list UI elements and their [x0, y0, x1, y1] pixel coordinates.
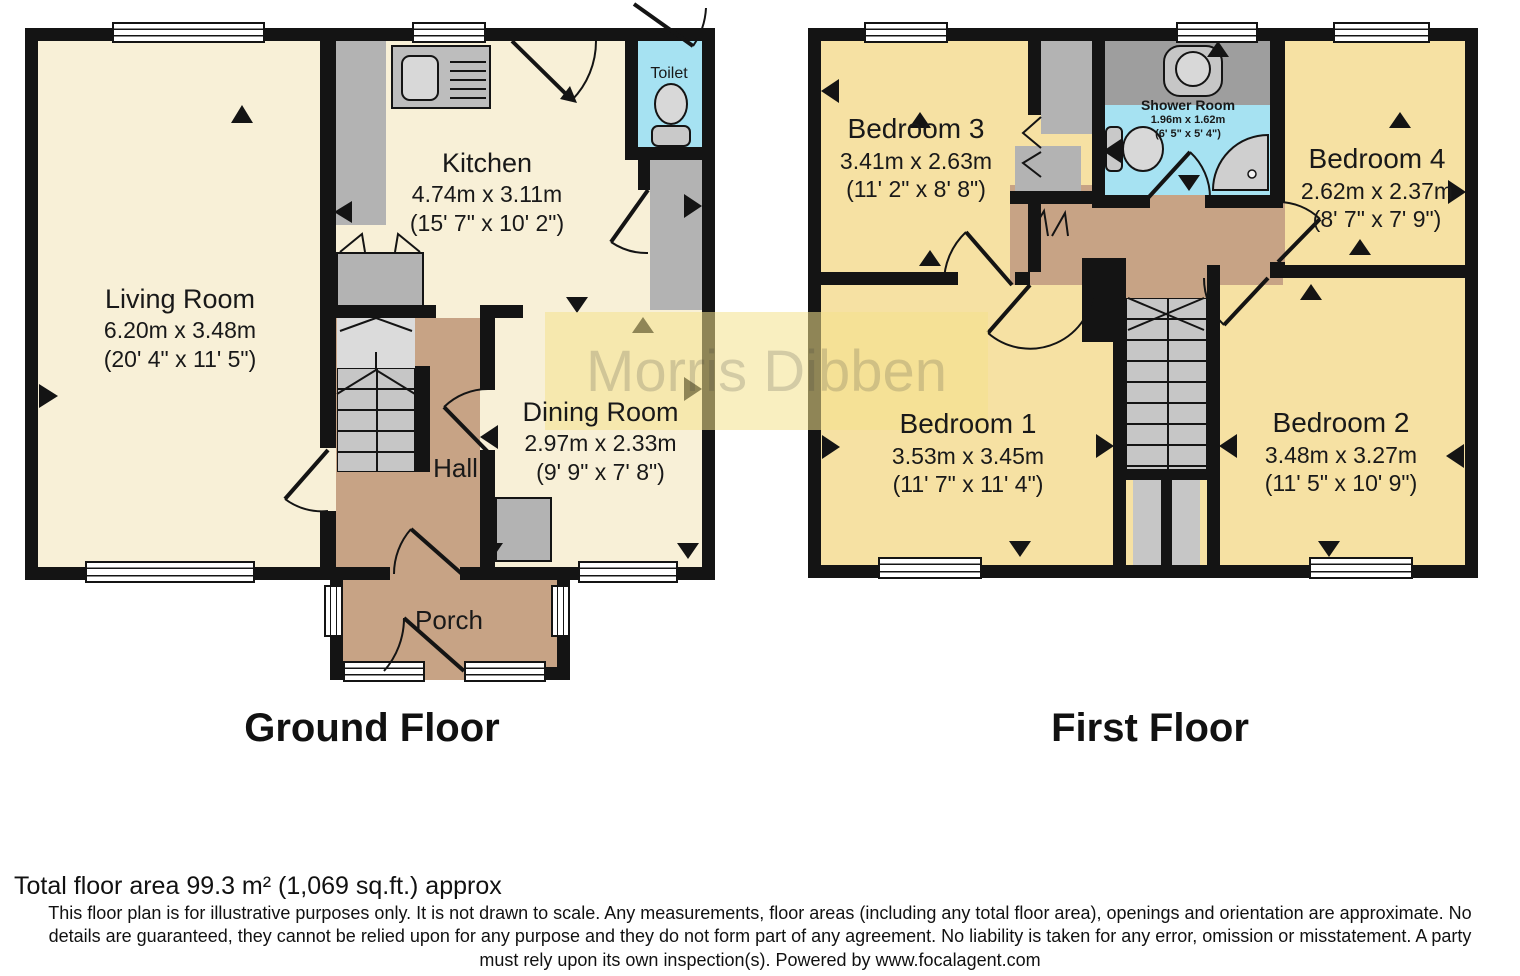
disclaimer-line: This floor plan is for illustrative purp… — [0, 902, 1520, 925]
front-door-arc — [394, 529, 411, 574]
bedroom2-name: Bedroom 2 — [1231, 406, 1451, 441]
store-door-leaf — [611, 190, 648, 242]
marker-bed4-window — [1389, 112, 1411, 128]
dining-room-name: Dining Room — [493, 396, 708, 429]
toilet-bowl-icon — [655, 84, 687, 124]
total-floor-area: Total floor area 99.3 m² (1,069 sq.ft.) … — [14, 872, 502, 901]
hall-label: Hall — [408, 452, 503, 484]
porch-label: Porch — [399, 604, 499, 636]
kitchen-sink-bowl — [402, 56, 438, 100]
toilet-door-leaf — [634, 4, 693, 46]
shower-room-name: Shower Room — [1108, 97, 1268, 114]
dining-room-label: Dining Room 2.97m x 2.33m (9' 9" x 7' 8"… — [493, 396, 708, 487]
bedroom2-door-leaf — [1224, 278, 1268, 325]
marker-bed2-bottom — [1318, 541, 1340, 557]
kitchen-door-arc — [572, 41, 596, 100]
marker-kitchen-dining-a — [566, 297, 588, 313]
bedroom2-metric: 3.48m x 3.27m — [1231, 441, 1451, 470]
bedroom1-imperial: (11' 7" x 11' 4") — [858, 470, 1078, 499]
disclaimer-line: must rely upon its own inspection(s). Po… — [0, 949, 1520, 972]
dining-room-metric: 2.97m x 2.33m — [493, 429, 708, 458]
marker-living-top — [231, 105, 253, 123]
bedroom2-door-arc — [1204, 278, 1224, 325]
bedroom4-label: Bedroom 4 2.62m x 2.37m (8' 7" x 7' 9") — [1267, 142, 1487, 234]
first-floor-title: First Floor — [1000, 706, 1300, 751]
front-door-leaf — [411, 529, 462, 574]
bedroom3-name: Bedroom 3 — [806, 112, 1026, 147]
bedroom3-label: Bedroom 3 3.41m x 2.63m (11' 2" x 8' 8") — [806, 112, 1026, 204]
floorplan-page: Living Room 6.20m x 3.48m (20' 4" x 11' … — [0, 0, 1520, 976]
marker-bed2-top — [1300, 284, 1322, 300]
bedroom2-imperial: (11' 5" x 10' 9") — [1231, 469, 1451, 498]
shower-room-metric: 1.96m x 1.62m — [1108, 114, 1268, 127]
marker-hall-bottom — [481, 543, 503, 559]
kitchen-label: Kitchen 4.74m x 3.11m (15' 7" x 10' 2") — [378, 147, 596, 238]
bedroom1-metric: 3.53m x 3.45m — [858, 442, 1078, 471]
kitchen-door-leaf — [512, 41, 572, 100]
living-room-imperial: (20' 4" x 11' 5") — [60, 345, 300, 374]
marker-store-right — [684, 194, 702, 218]
shower-room-imperial: (6' 5" x 5' 4") — [1108, 128, 1268, 141]
marker-bed4-bottom — [1349, 239, 1371, 255]
kitchen-metric: 4.74m x 3.11m — [378, 180, 596, 209]
shower-drain-icon — [1248, 170, 1256, 178]
corner-shower-icon — [1213, 135, 1268, 190]
watermark-text: Morris Dibben — [586, 338, 947, 405]
kitchen-imperial: (15' 7" x 10' 2") — [378, 209, 596, 238]
shower-room-label: Shower Room 1.96m x 1.62m (6' 5" x 5' 4"… — [1108, 97, 1268, 141]
bedroom1-door-leaf — [988, 285, 1030, 333]
store-door-arc — [611, 242, 648, 253]
marker-kitchen-left — [334, 201, 352, 223]
living-room-label: Living Room 6.20m x 3.48m (20' 4" x 11' … — [60, 283, 300, 374]
marker-bed1-right — [1096, 434, 1114, 458]
stair-direction-lines-first — [1128, 298, 1204, 330]
marker-shower — [1178, 175, 1200, 191]
bedroom1-label: Bedroom 1 3.53m x 3.45m (11' 7" x 11' 4"… — [858, 407, 1078, 499]
marker-dining-bottom — [677, 543, 699, 559]
marker-bed3-left — [821, 79, 839, 103]
marker-bed1-left — [822, 435, 840, 459]
bedroom2-label: Bedroom 2 3.48m x 3.27m (11' 5" x 10' 9"… — [1231, 406, 1451, 498]
toilet-cistern-icon — [652, 126, 690, 146]
living-room-name: Living Room — [60, 283, 300, 316]
bedroom3-imperial: (11' 2" x 8' 8") — [806, 175, 1026, 204]
disclaimer: This floor plan is for illustrative purp… — [0, 902, 1520, 972]
dining-door-leaf — [444, 407, 488, 452]
landing-cupboard-doors — [1029, 211, 1068, 236]
stair-direction-lines — [337, 318, 415, 394]
living-door-leaf — [285, 450, 328, 499]
toilet-door-arc — [693, 8, 706, 46]
bedroom4-name: Bedroom 4 — [1267, 142, 1487, 177]
living-door-arc — [285, 499, 328, 511]
dining-door-arc — [444, 389, 488, 407]
bedroom4-imperial: (8' 7" x 7' 9") — [1267, 205, 1487, 234]
bedroom3-door-arc — [944, 232, 966, 285]
bedroom3-door-leaf — [966, 232, 1012, 285]
dining-room-imperial: (9' 9" x 7' 8") — [493, 458, 708, 487]
bedroom4-metric: 2.62m x 2.37m — [1267, 177, 1487, 206]
disclaimer-line: details are guaranteed, they cannot be r… — [0, 925, 1520, 948]
marker-living-left — [39, 384, 58, 408]
living-room-metric: 6.20m x 3.48m — [60, 316, 300, 345]
marker-bed3-bottom — [919, 250, 941, 266]
toilet-label: Toilet — [629, 64, 709, 84]
ground-floor-title: Ground Floor — [222, 706, 522, 751]
basin-bowl-icon — [1176, 52, 1210, 86]
marker-bed1-bottom — [1009, 541, 1031, 557]
bedroom1-name: Bedroom 1 — [858, 407, 1078, 442]
kitchen-name: Kitchen — [378, 147, 596, 180]
bedroom3-metric: 3.41m x 2.63m — [806, 147, 1026, 176]
